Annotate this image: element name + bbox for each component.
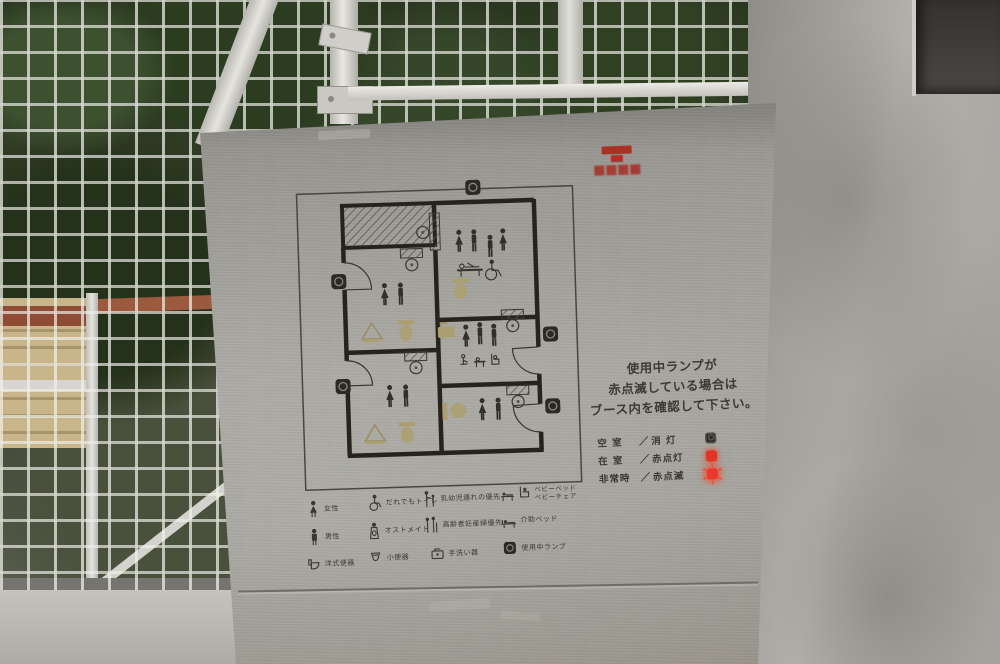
male-icon [308, 528, 322, 545]
booth-right-lower-figures [478, 398, 501, 421]
legend-male: 男性 [308, 527, 341, 545]
legend-label: 使用中ランプ [521, 541, 566, 553]
legend-western-toilet: 洋式便器 [307, 555, 355, 572]
baby-chair-icon [518, 485, 531, 502]
western-toilet-icon [307, 556, 322, 571]
service-area-hatched [342, 203, 435, 248]
washbasin-icon [365, 425, 386, 445]
legend-label: 洋式便器 [325, 557, 355, 568]
ostomate-icon [367, 522, 381, 539]
child-figure [487, 235, 493, 257]
wall-edge [912, 0, 916, 96]
photo-of-toilet-map-sign: 使用中ランプが 赤点滅している場合は ブース内を確認して下さい。 空 室 ／ 消… [0, 0, 1000, 664]
state-label: 非常時 [599, 470, 640, 486]
lamp-state: 消 灯 [651, 431, 698, 447]
separator: ／ [639, 469, 654, 484]
fence-post [558, 0, 583, 92]
pavement [0, 590, 256, 664]
legend-label: 男性 [325, 531, 340, 542]
toilet-icon [452, 278, 469, 299]
usage-notice: 使用中ランプが 赤点滅している場合は ブース内を確認して下さい。 [582, 353, 765, 422]
legend-label: 乳幼児連れの優先 [440, 491, 500, 503]
legend-hand-wash: 手洗い器 [430, 545, 478, 562]
legend-infant-priority: 乳幼児連れの優先 [422, 488, 501, 508]
separator: ／ [637, 433, 652, 448]
lamp-off-icon [705, 432, 716, 443]
baby-bed-icon [458, 263, 482, 277]
toilet-icon [398, 320, 415, 341]
urinal-icon [368, 551, 382, 565]
legend-elderly-priority: 高齢者妊産婦優先 [423, 514, 503, 534]
legend-ostomate: オストメイト [367, 520, 430, 539]
in-use-lamp-icon [502, 540, 518, 556]
hand-wash-icon [438, 322, 455, 338]
hand-wash-icon [430, 546, 445, 561]
red-emblem [590, 145, 645, 176]
toilet-icon [442, 402, 467, 420]
legend-label: 女性 [324, 503, 339, 514]
legend-in-use-lamp: 使用中ランプ [502, 538, 566, 555]
concrete-wall [748, 0, 1000, 664]
state-label: 空 室 [597, 434, 638, 450]
state-label: 在 室 [598, 452, 639, 468]
lamp-blink-icon [707, 468, 718, 479]
legend-label: 高齢者妊産婦優先 [442, 517, 502, 529]
separator: ／ [638, 451, 653, 466]
parent-child-icon [422, 490, 437, 507]
legend-nursing-bed: 介助ベッド [501, 510, 558, 529]
lamp-on-icon [706, 450, 717, 461]
lamp-state-legend: 空 室 ／ 消 灯 在 室 ／ 赤点灯 非常時 ／ 赤点滅 [597, 426, 757, 487]
female-icon [307, 500, 321, 517]
baby-bed-icon [500, 485, 515, 502]
legend-urinal: 小便器 [368, 550, 409, 565]
booth-left-lower-figures [386, 384, 409, 407]
lamp-state: 赤点灯 [652, 449, 699, 465]
washbasin-icon [362, 323, 383, 343]
elderly-pair-icon [423, 516, 439, 534]
legend-label: ベビーチェア [534, 492, 576, 501]
emblem-mark [611, 155, 623, 162]
wheelchair-icon [485, 259, 501, 280]
legend-label: 手洗い器 [448, 547, 478, 558]
legend-label: 小便器 [386, 552, 409, 563]
lamp-state: 赤点滅 [653, 467, 700, 483]
booth-right-middle-figures [462, 322, 497, 347]
legend-baby-bed-chair: ベビーベッド ベビーチェア [500, 483, 577, 503]
accessible-room-figures [455, 228, 507, 258]
toilet-icon [399, 422, 416, 443]
emblem-text-illegible [590, 164, 644, 176]
booth-left-upper-figures [381, 283, 404, 306]
legend-female: 女性 [307, 499, 340, 517]
toilet-floorplan [283, 170, 593, 499]
dark-doorway [916, 0, 1000, 94]
baby-care-icons [461, 354, 499, 368]
wheelchair-icon [366, 494, 382, 512]
nursing-bed-icon [501, 511, 517, 529]
pictogram-legend: 女性 だれでもトイレ 乳幼児連れの優先 ベビーベッド ベビーチェア [294, 483, 577, 593]
emblem-mark [602, 145, 632, 154]
legend-label: 介助ベッド [520, 513, 558, 524]
